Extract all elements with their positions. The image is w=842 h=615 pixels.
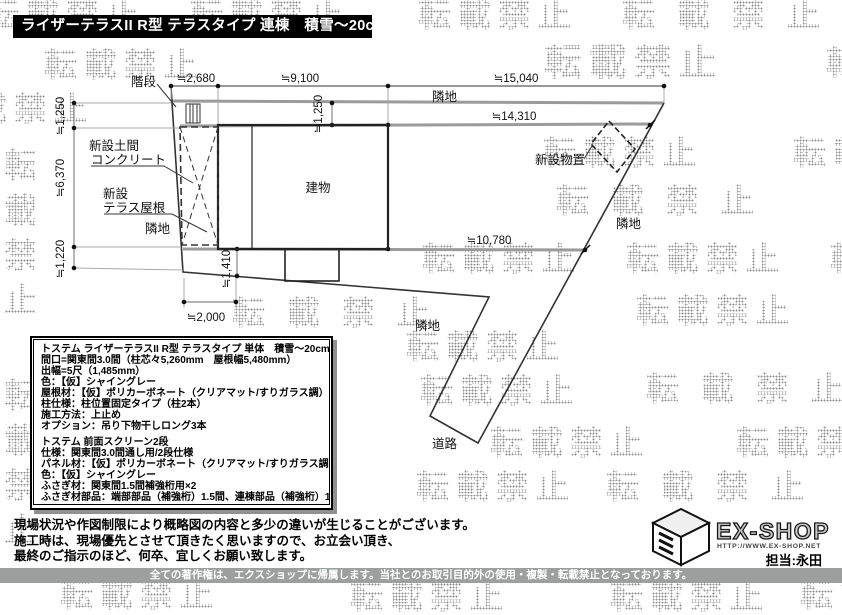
page-title: ライザーテラスII R型 テラスタイプ 連棟 積雪～20cm対応 [21,18,372,34]
dim-terrace-width: ≒2,000 [187,312,225,324]
spec-line: トステム ライザーテラスII R型 テラスタイプ 単体 積雪～20cm対応 [41,344,322,355]
dim-left-seg1: ≒1,250 [55,97,67,135]
spec-line: 色：【仮】シャイングレー [41,470,322,481]
agent-name: 担当:永田 [716,550,822,569]
spec-line: 色：【仮】シャイングレー [41,377,322,388]
spec-box-inner: トステム ライザーテラスII R型 テラスタイプ 単体 積雪～20cm対応 間口… [33,339,330,505]
label-building: 建物 [305,181,330,195]
spec-line: 間口=関東間3.0間（柱芯々5,260mm 屋根幅5,480mm） [41,355,322,366]
note-line: 施工時は、現場優先とさせて頂きたく思いますので、お立会い頂き、 [14,534,475,550]
spec-line: オプション：吊り下物干しロング3本 [41,421,322,432]
spec-box: トステム ライザーテラスII R型 テラスタイプ 単体 積雪～20cm対応 間口… [30,336,333,510]
label-road: 道路 [432,436,458,451]
exshop-brand-text: EX-SHOP [716,518,830,545]
dim-left-seg2: ≒6,370 [55,159,67,197]
label-doma-1: 新設土間 [89,138,139,153]
stairs-outline [186,104,200,123]
label-terrace-1: 新設 [103,186,129,201]
spec-line: パネル材：【仮】ポリカーボネート（クリアマット/すりガラス調） [41,459,322,470]
label-stairs: 階段 [131,74,156,89]
dim-left-seg3: ≒1,220 [55,240,67,278]
dimension-ticks [72,84,667,305]
dim-building-top-offset: ≒1,250 [313,95,325,133]
spec-line: ふさぎ材部品：端部部品（補強桁）1.5間、連棟部品（補強桁）1.5間用 [41,492,322,503]
building-outline [218,125,388,281]
dim-top-seg2: ≒9,100 [281,73,319,85]
label-neighbor-left: 隣地 [145,221,171,236]
spec-line: 柱仕様：柱位置固定タイプ（柱2本） [41,399,322,410]
label-neighbor-top: 隣地 [432,89,458,104]
shed-outline [591,121,635,172]
label-terrace-2: テラス屋根 [103,201,166,215]
spec-line: ふさぎ材：関東間1.5間補強桁用×2 [41,481,322,492]
label-doma-2: コンクリート [91,153,166,167]
dim-building-bottom-offset: ≒1,410 [221,250,233,288]
boundary-fence-lines [171,101,664,250]
spec-line: 仕様：関東間3.0間通し用/2段仕様 [41,448,322,459]
spec-line: 出幅=5尺（1,485mm） [41,366,322,377]
note-line: 最終のご指示のほど、何卒、宜しくお願い致します。 [14,549,475,565]
leader-lines [91,84,592,232]
exshop-url-text: HTTP://WWW.EX-SHOP.NET [717,543,821,550]
page: { "title": "ライザーテラスII R型 テラスタイプ 連棟 積雪～20… [0,0,842,595]
site-notes: 現場状況や作図制限により概略図の内容と多少の違いが生じることがございます。 施工… [14,518,475,565]
dim-top-seg3: ≒15,040 [494,73,539,85]
exshop-cube-icon [650,506,712,568]
footer-bar: 全ての著作権は、エクスショップに帰属します。当社とのお取引目的外の使用・複製・転… [0,568,842,583]
spec-line: 施工方法：上止め [41,410,322,421]
exshop-logo: EX-SHOP HTTP://WWW.EX-SHOP.NET 担当:永田 [650,506,830,568]
title-bar: ライザーテラスII R型 テラスタイプ 連棟 積雪～20cm対応 [13,15,372,38]
dim-fence-upper: ≒14,310 [492,111,537,123]
extension-lines [74,86,664,308]
label-shed: 新設物置 [535,152,585,167]
spec-line: トステム 前面スクリーン2段 [41,437,322,448]
terrace-roof-dashed [180,127,218,245]
spec-line: 屋根材：【仮】ポリカーボネート（クリアマット/すりガラス調） [41,388,322,399]
dim-fence-lower: ≒10,780 [467,235,512,247]
note-line: 現場状況や作図制限により概略図の内容と多少の違いが生じることがございます。 [14,518,475,534]
label-neighbor-right: 隣地 [616,216,642,231]
porch-outline [285,249,339,281]
footer-copyright: 全ての著作権は、エクスショップに帰属します。当社とのお取引目的外の使用・複製・転… [150,569,692,581]
label-neighbor-strip: 隣地 [415,318,441,333]
dim-top-seg1: ≒2,680 [177,73,215,85]
